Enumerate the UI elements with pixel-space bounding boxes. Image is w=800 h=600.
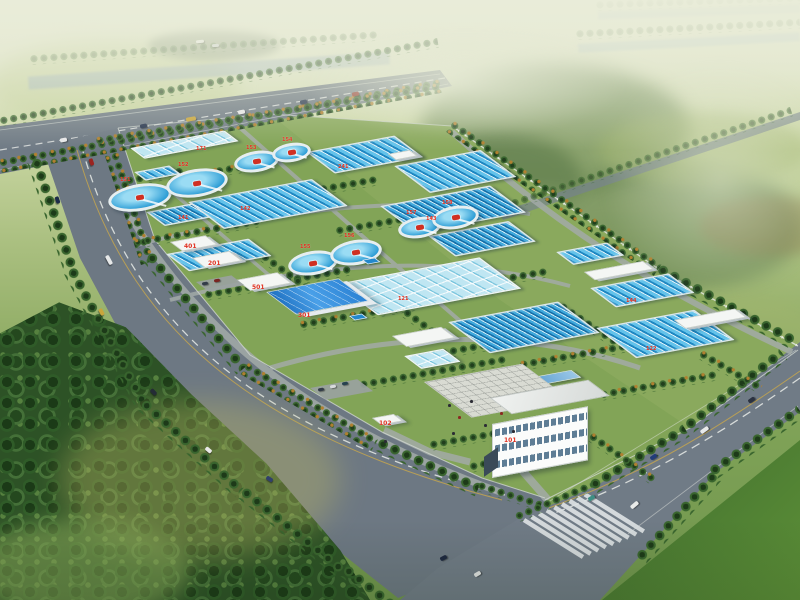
- label-basin-142: 142: [240, 206, 250, 213]
- person: [484, 424, 487, 427]
- label-clarifier: 151: [120, 177, 130, 184]
- label-workshop-301: 301: [298, 312, 311, 319]
- label-basin-121: 121: [398, 296, 408, 303]
- label-basin-143: 143: [426, 216, 436, 223]
- vignette-bottom: [0, 520, 800, 600]
- label-aux-501: 501: [252, 284, 265, 291]
- label-clarifier: 157: [406, 210, 416, 217]
- label-gatehouse-102: 102: [379, 420, 392, 427]
- aerial-rendering-water-treatment-plant: 101 102 301 401 201 501 141 142 143 144 …: [0, 0, 800, 600]
- person: [512, 430, 515, 433]
- label-basin-241: 241: [338, 164, 348, 171]
- label-clarifier: 152: [178, 162, 188, 169]
- person: [384, 440, 387, 443]
- label-admin-101: 101: [504, 437, 517, 444]
- person: [500, 412, 503, 415]
- person: [470, 400, 473, 403]
- label-basin-141: 141: [178, 215, 188, 222]
- label-basin-144: 144: [626, 298, 636, 305]
- person: [452, 432, 455, 435]
- person: [458, 416, 461, 419]
- label-clarifier: 158: [442, 200, 452, 207]
- label-basin-122: 122: [646, 346, 656, 353]
- haze-center: [300, 28, 630, 138]
- label-clarifier: 155: [300, 244, 310, 251]
- label-aux-201: 201: [208, 260, 221, 267]
- person: [448, 404, 451, 407]
- label-aux-401: 401: [184, 243, 197, 250]
- label-clarifier: 156: [344, 233, 354, 240]
